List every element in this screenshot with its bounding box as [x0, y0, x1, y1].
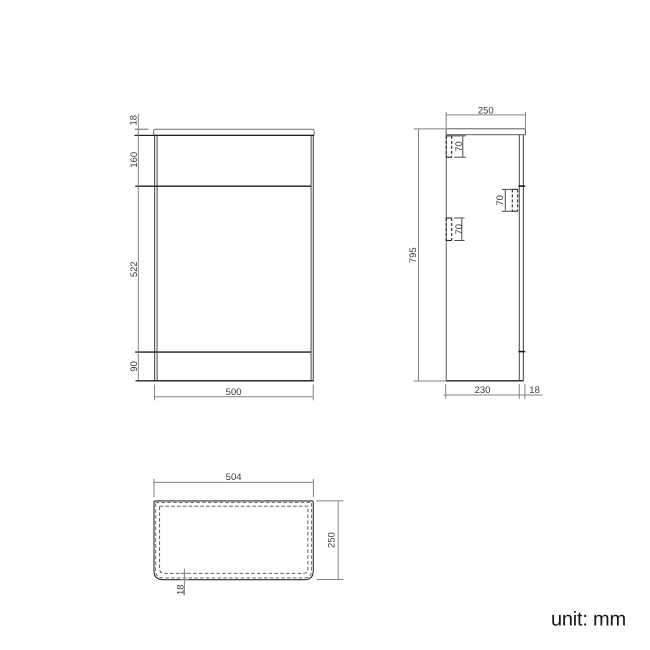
- svg-text:522: 522: [129, 261, 140, 277]
- svg-text:795: 795: [408, 247, 419, 263]
- svg-text:504: 504: [226, 472, 242, 483]
- svg-text:70: 70: [454, 224, 465, 235]
- svg-text:160: 160: [129, 152, 140, 168]
- svg-text:18: 18: [529, 385, 540, 396]
- svg-text:250: 250: [326, 532, 337, 548]
- svg-text:70: 70: [454, 141, 465, 152]
- svg-text:unit: mm: unit: mm: [551, 609, 626, 631]
- svg-text:230: 230: [475, 385, 491, 396]
- svg-text:90: 90: [129, 361, 140, 372]
- svg-text:18: 18: [175, 584, 186, 595]
- svg-text:250: 250: [478, 105, 494, 116]
- svg-text:500: 500: [226, 387, 242, 398]
- svg-text:18: 18: [129, 115, 140, 126]
- svg-text:70: 70: [495, 195, 506, 206]
